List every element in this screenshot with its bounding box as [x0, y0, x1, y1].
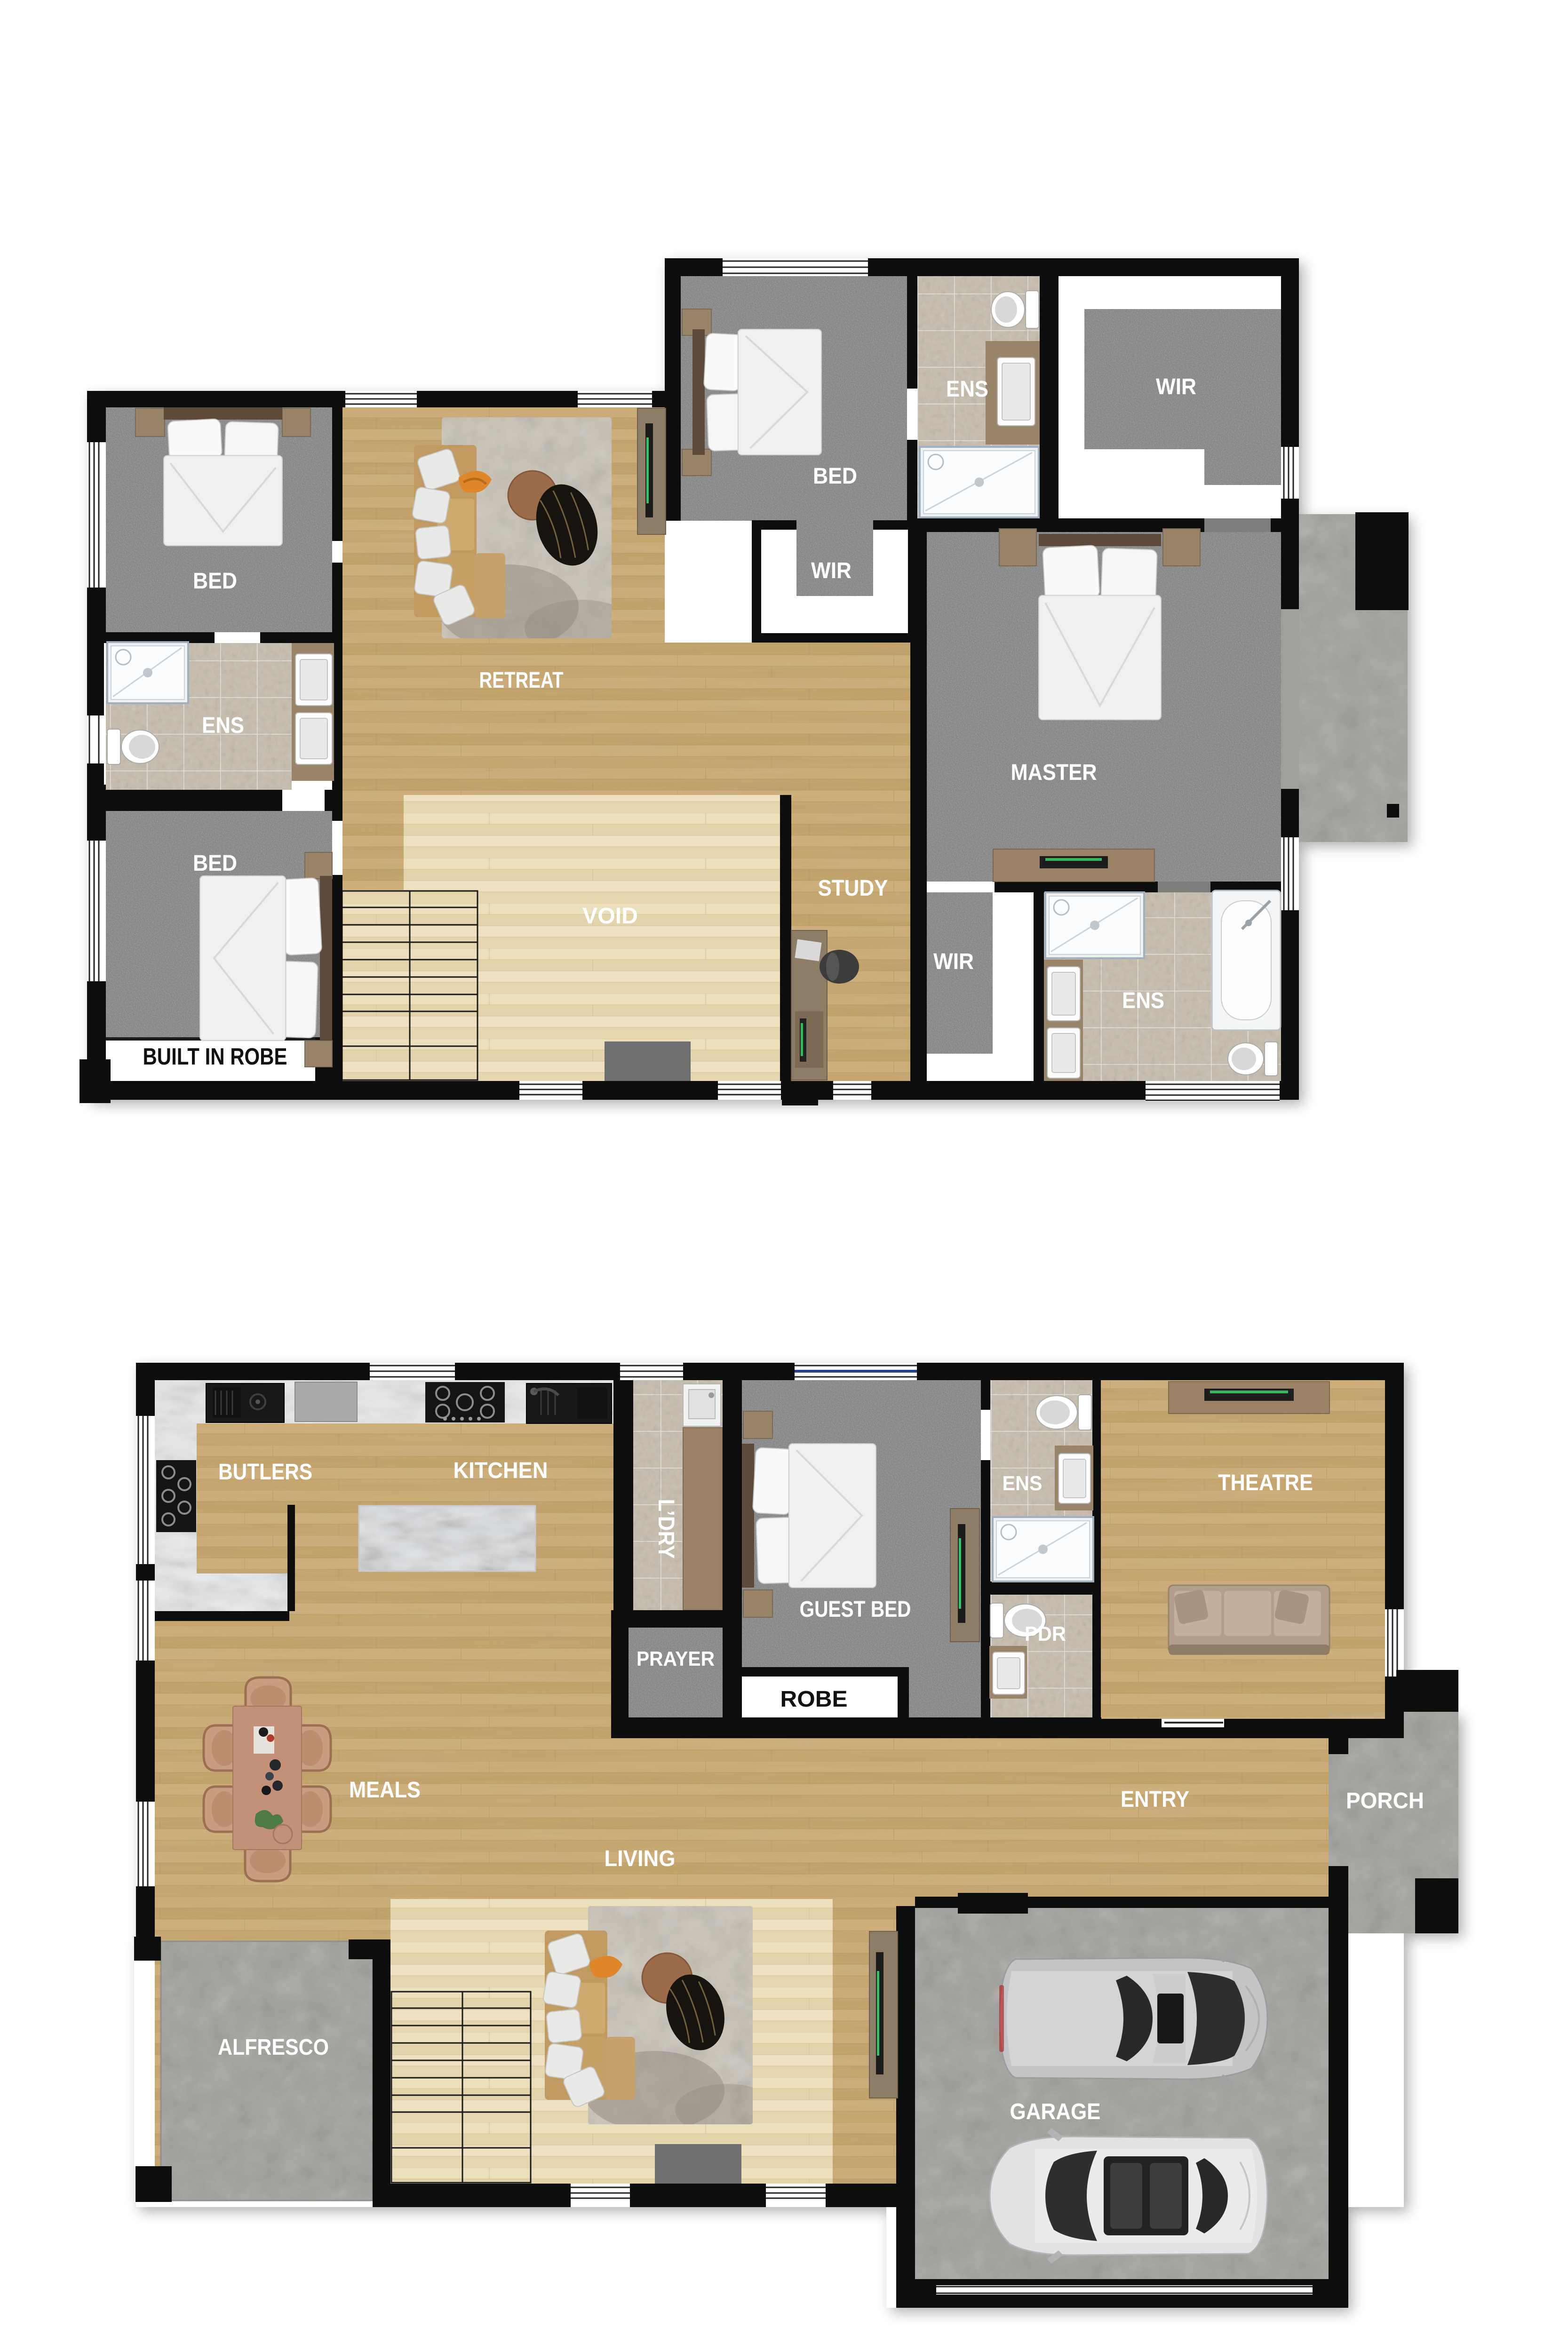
svg-text:ENS: ENS — [202, 713, 244, 738]
svg-text:ENS: ENS — [1003, 1472, 1043, 1495]
svg-text:THEATRE: THEATRE — [1218, 1470, 1313, 1495]
svg-text:KITCHEN: KITCHEN — [454, 1458, 548, 1483]
svg-text:PDR: PDR — [1025, 1622, 1066, 1645]
svg-text:BUTLERS: BUTLERS — [218, 1460, 312, 1485]
svg-text:WIR: WIR — [811, 558, 852, 583]
svg-text:BED: BED — [813, 464, 857, 489]
svg-text:WIR: WIR — [933, 949, 974, 974]
svg-text:GUEST BED: GUEST BED — [800, 1597, 911, 1622]
svg-text:LIVING: LIVING — [605, 1846, 676, 1871]
svg-text:BED: BED — [193, 569, 237, 594]
svg-text:VOID: VOID — [582, 904, 638, 929]
svg-text:L’DRY: L’DRY — [653, 1499, 678, 1559]
svg-text:ENS: ENS — [946, 377, 988, 402]
svg-text:MASTER: MASTER — [1011, 760, 1097, 785]
svg-text:ALFRESCO: ALFRESCO — [218, 2035, 329, 2060]
svg-text:MEALS: MEALS — [349, 1778, 421, 1803]
svg-text:BUILT IN ROBE: BUILT IN ROBE — [143, 1043, 287, 1070]
svg-text:ENTRY: ENTRY — [1121, 1787, 1189, 1812]
svg-text:ROBE: ROBE — [780, 1687, 848, 1712]
svg-text:ENS: ENS — [1122, 988, 1164, 1013]
svg-text:STUDY: STUDY — [818, 876, 888, 901]
svg-text:GARAGE: GARAGE — [1010, 2099, 1101, 2124]
svg-text:PRAYER: PRAYER — [637, 1647, 715, 1670]
svg-text:WIR: WIR — [1156, 374, 1196, 399]
svg-text:BED: BED — [193, 851, 237, 876]
svg-text:RETREAT: RETREAT — [479, 668, 564, 693]
svg-text:PORCH: PORCH — [1346, 1788, 1424, 1813]
